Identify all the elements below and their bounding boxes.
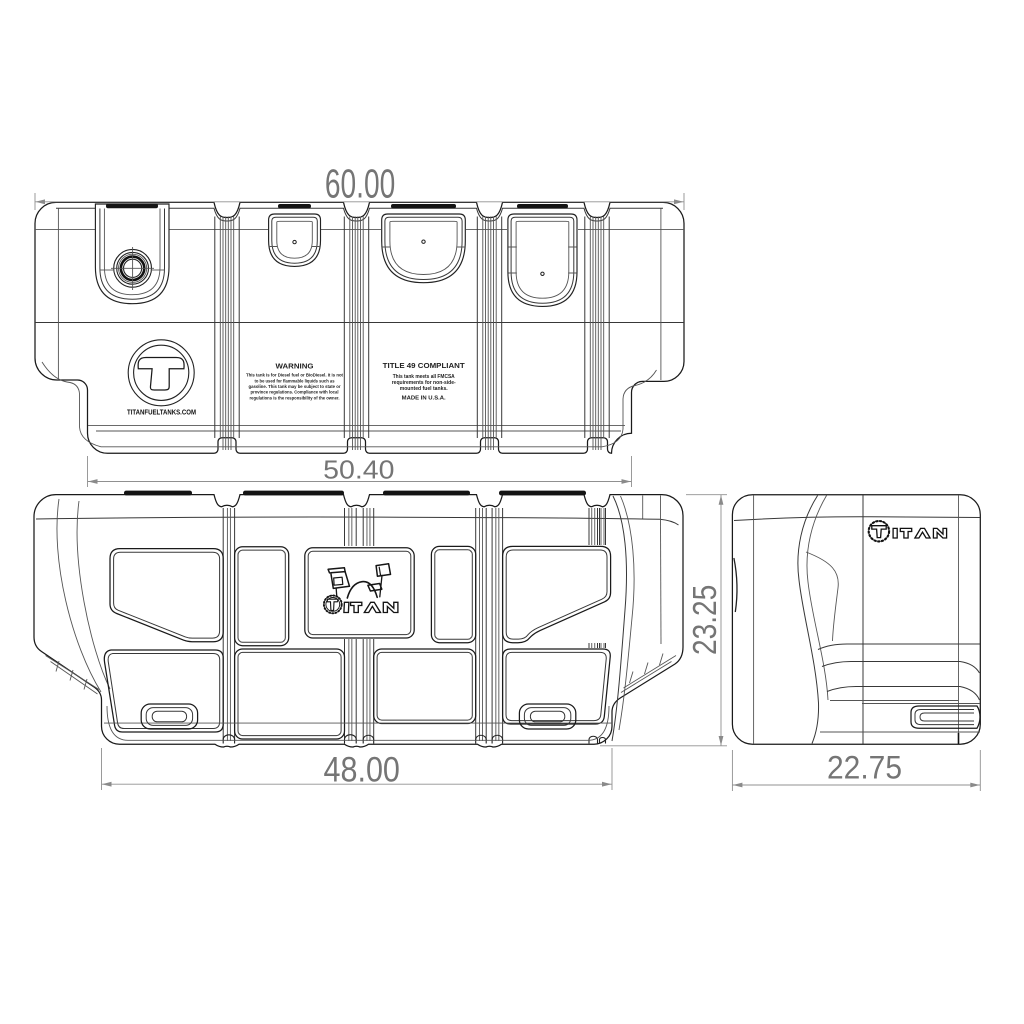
svg-text:gasoline. This tank may be sub: gasoline. This tank may be subject to st…	[249, 384, 341, 389]
svg-text:60.00: 60.00	[325, 161, 395, 207]
svg-text:TITLE 49 COMPLIANT: TITLE 49 COMPLIANT	[383, 361, 466, 370]
svg-text:MADE IN U.S.A.: MADE IN U.S.A.	[402, 396, 447, 402]
svg-text:23.25: 23.25	[686, 585, 723, 655]
svg-text:TITANFUELTANKS.COM: TITANFUELTANKS.COM	[127, 408, 196, 417]
svg-text:regulations is the responsibil: regulations is the responsibility of the…	[250, 395, 340, 400]
svg-text:to be used for flammable liqui: to be used for flammable liquids such as	[255, 378, 336, 383]
svg-text:This tank meets all FMCSA: This tank meets all FMCSA	[393, 374, 455, 380]
svg-text:50.40: 50.40	[323, 456, 394, 484]
svg-text:requirements for non-side-: requirements for non-side-	[392, 380, 456, 386]
svg-text:WARNING: WARNING	[276, 364, 314, 371]
svg-text:22.75: 22.75	[827, 749, 902, 785]
svg-text:mounted fuel tanks.: mounted fuel tanks.	[400, 386, 449, 392]
svg-text:This tank is for Diesel fuel o: This tank is for Diesel fuel or BioDiese…	[246, 373, 344, 378]
svg-text:48.00: 48.00	[324, 750, 400, 790]
svg-text:province regulations. Complian: province regulations. Compliance with lo…	[251, 390, 339, 395]
